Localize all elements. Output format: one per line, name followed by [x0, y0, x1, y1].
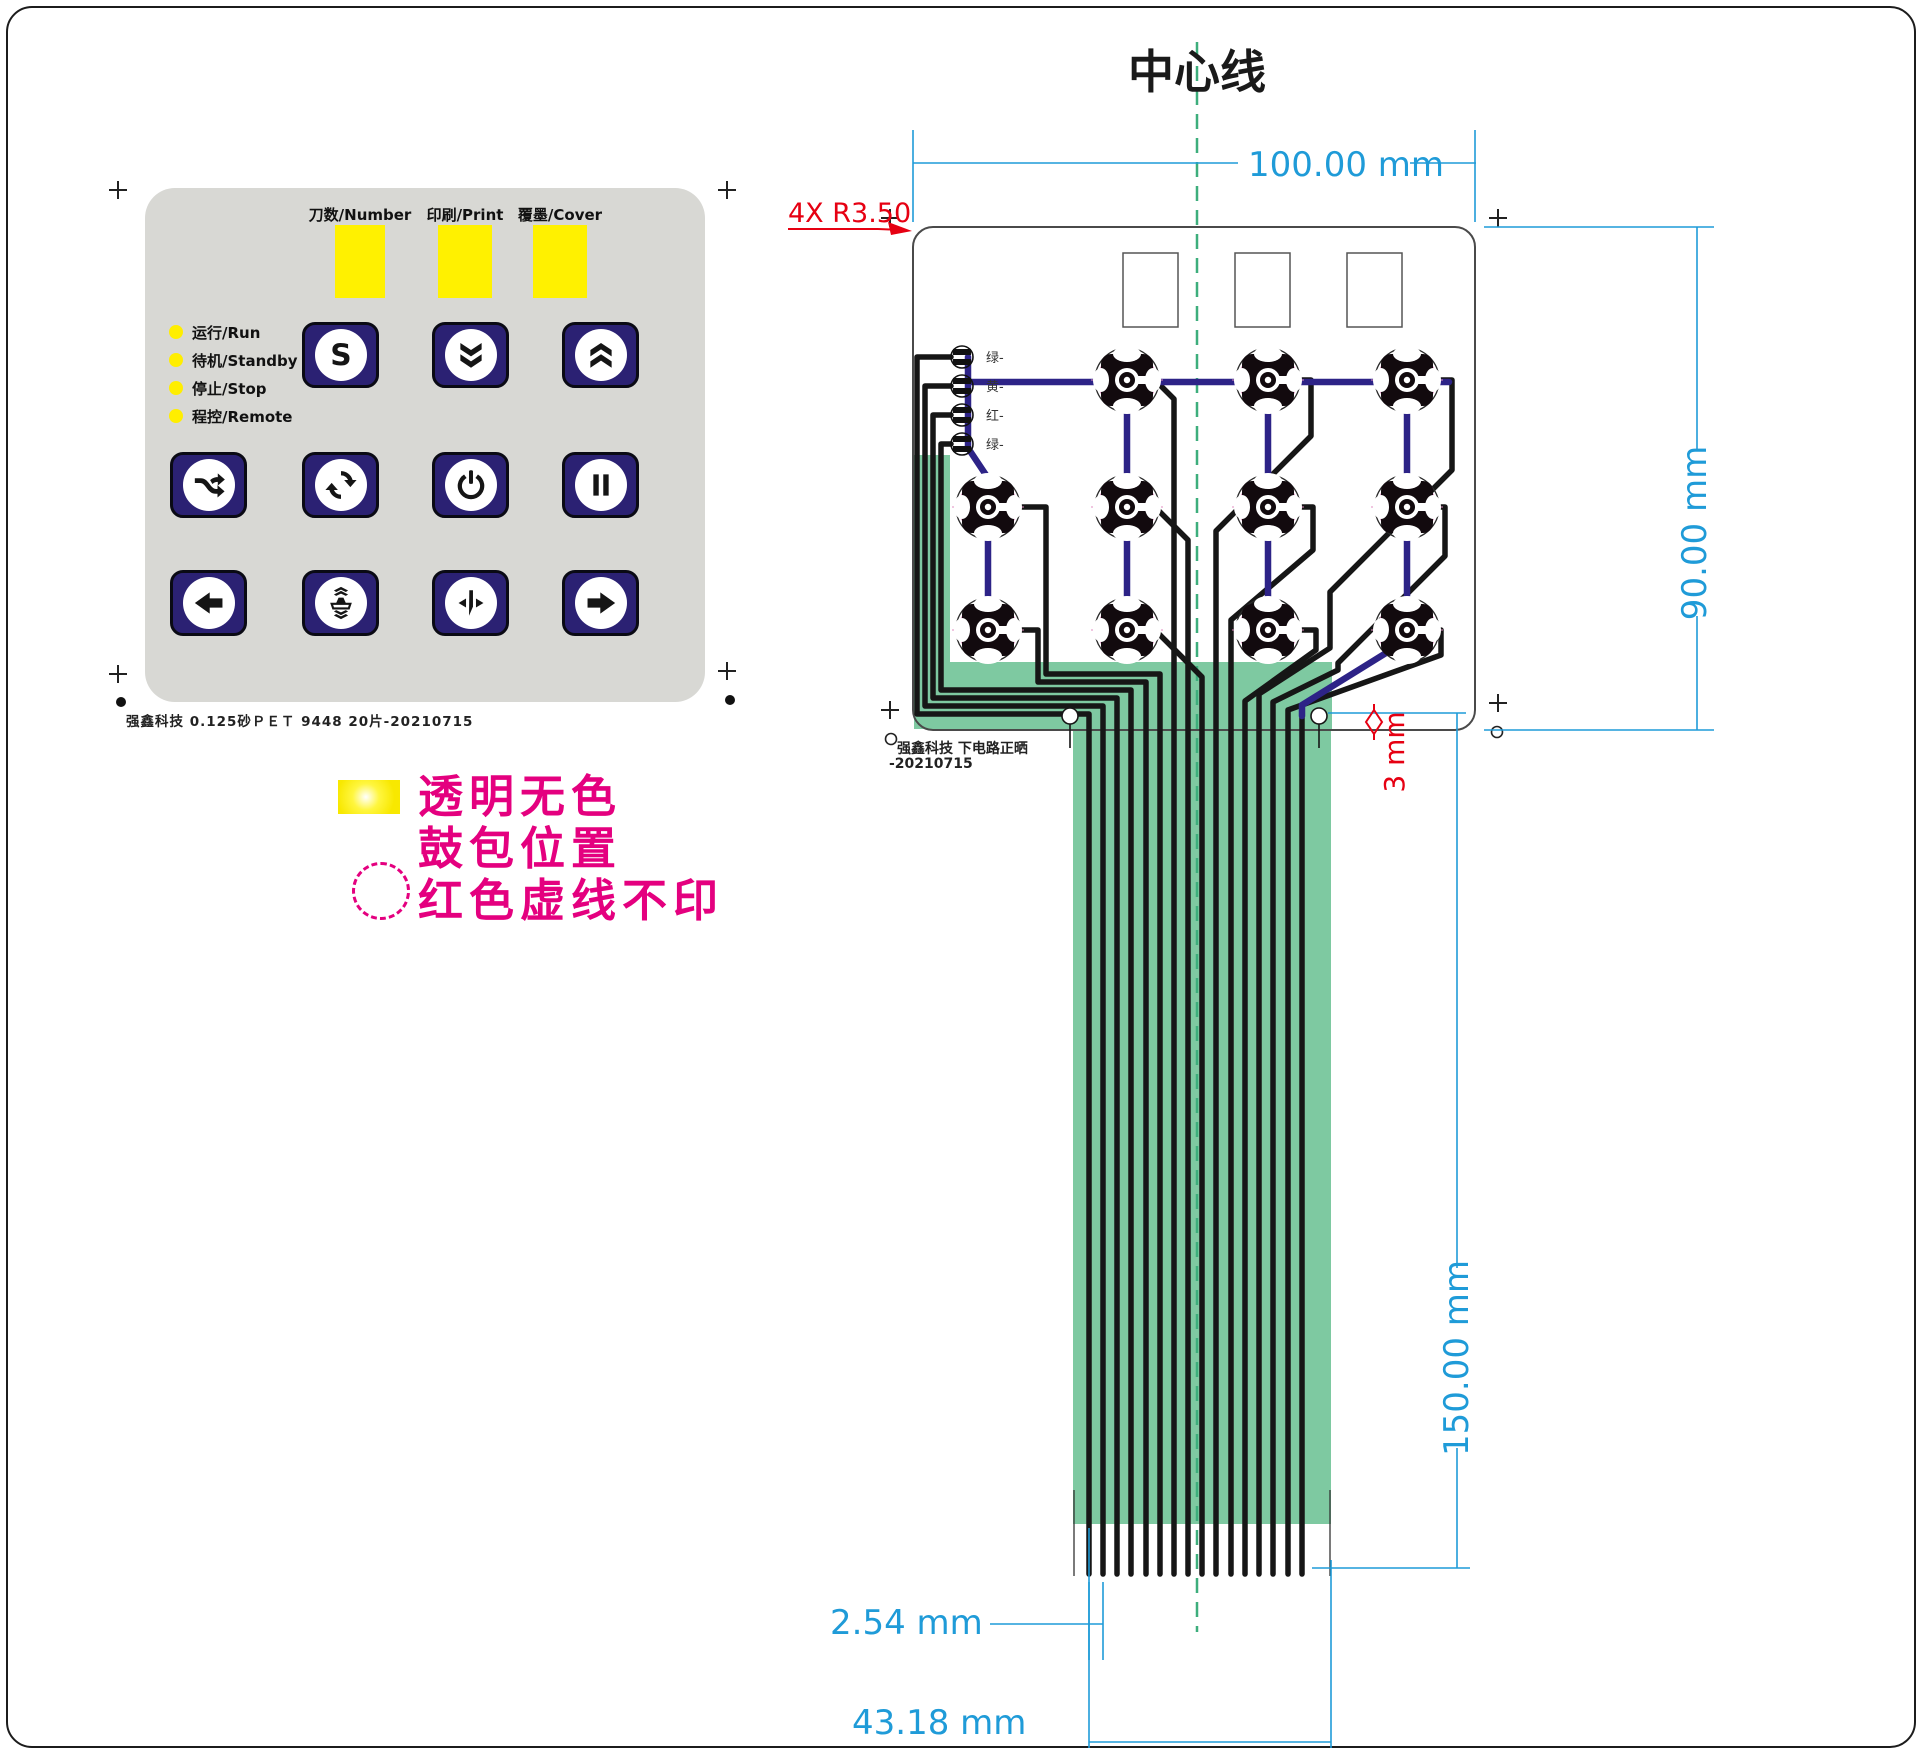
- circuit-note-date: -20210715: [889, 756, 973, 772]
- wire-label-green1: 绿-: [986, 351, 1004, 366]
- dim-pitch-label: 2.54 mm: [830, 1603, 983, 1643]
- hole-size-label: 3 mm: [1378, 711, 1411, 792]
- dim-tail-label: 150.00 mm: [1437, 1260, 1477, 1456]
- wire-label-red: 红-: [986, 408, 1004, 424]
- circuit-drawing: 绿- 黄- 红- 绿- 中心线: [0, 0, 1920, 1752]
- dim-connector-label: 43.18 mm: [852, 1703, 1026, 1743]
- membrane-switch-drawing: 刀数/Number 印刷/Print 覆墨/Cover 运行/Run 待机/St…: [0, 0, 1920, 1752]
- circuit-window-cutouts: [1123, 253, 1402, 327]
- wire-label-green2: 绿-: [986, 438, 1004, 453]
- dim-height-label: 90.00 mm: [1675, 446, 1715, 620]
- circuit-note-company: 强鑫科技 下电路正晒: [897, 740, 1028, 757]
- wire-label-yellow: 黄-: [986, 380, 1004, 395]
- drawing-title: 中心线: [1128, 45, 1266, 99]
- dim-width-label: 100.00 mm: [1248, 145, 1444, 185]
